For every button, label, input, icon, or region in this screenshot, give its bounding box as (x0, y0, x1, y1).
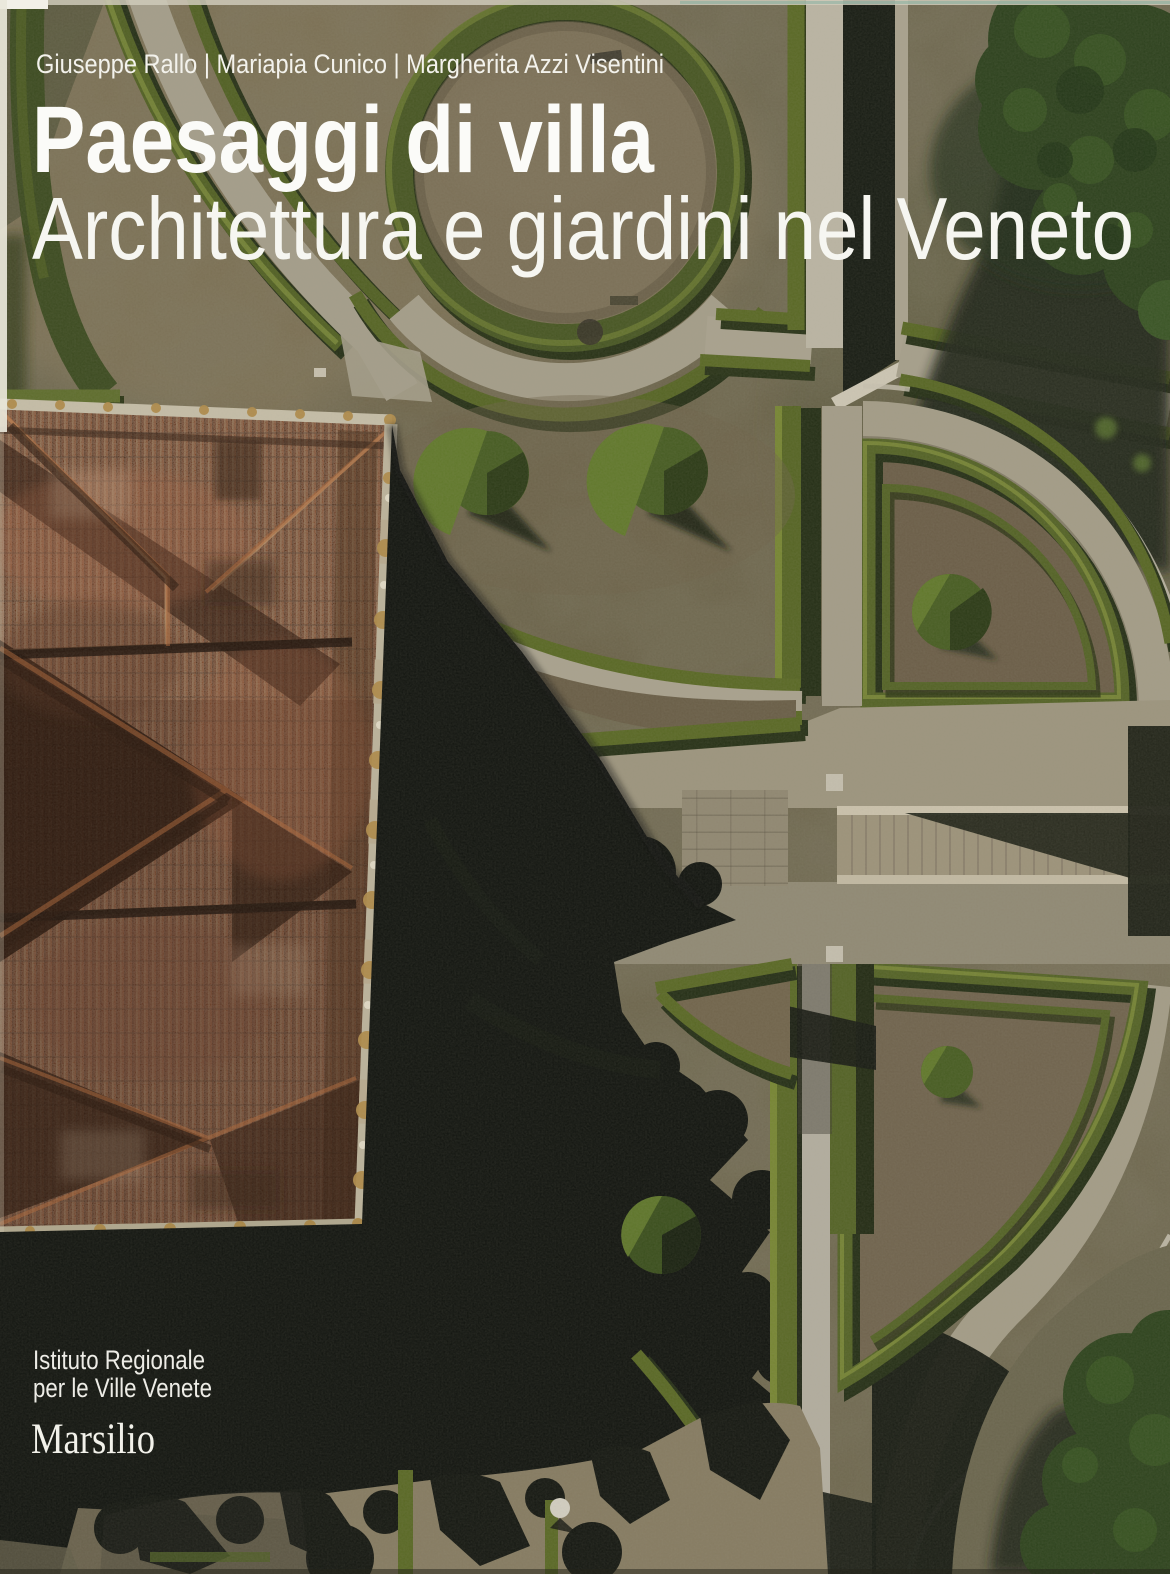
svg-text:Giuseppe Rallo | Mariapia Cuni: Giuseppe Rallo | Mariapia Cunico | Margh… (36, 49, 664, 79)
svg-text:Istituto Regionale: Istituto Regionale (33, 1345, 205, 1375)
svg-text:Architettura e giardini nel Ve: Architettura e giardini nel Veneto (32, 179, 1134, 278)
svg-text:Paesaggi di villa: Paesaggi di villa (32, 87, 655, 193)
svg-text:Marsilio: Marsilio (31, 1416, 155, 1463)
svg-text:per le Ville Venete: per le Ville Venete (33, 1373, 212, 1403)
